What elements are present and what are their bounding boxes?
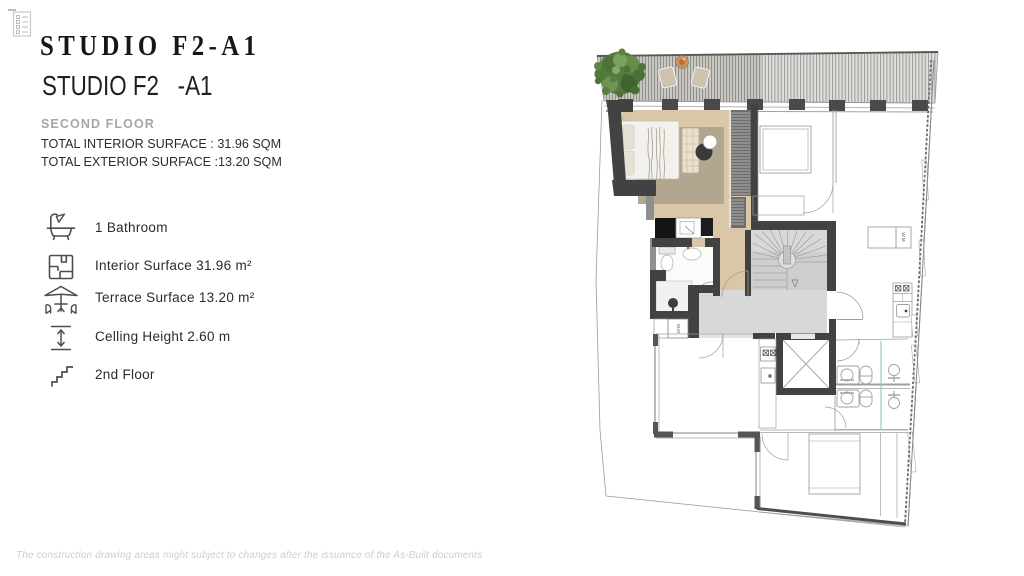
svg-text:W.M.: W.M. <box>901 232 906 242</box>
svg-text:W.M.: W.M. <box>676 324 681 334</box>
